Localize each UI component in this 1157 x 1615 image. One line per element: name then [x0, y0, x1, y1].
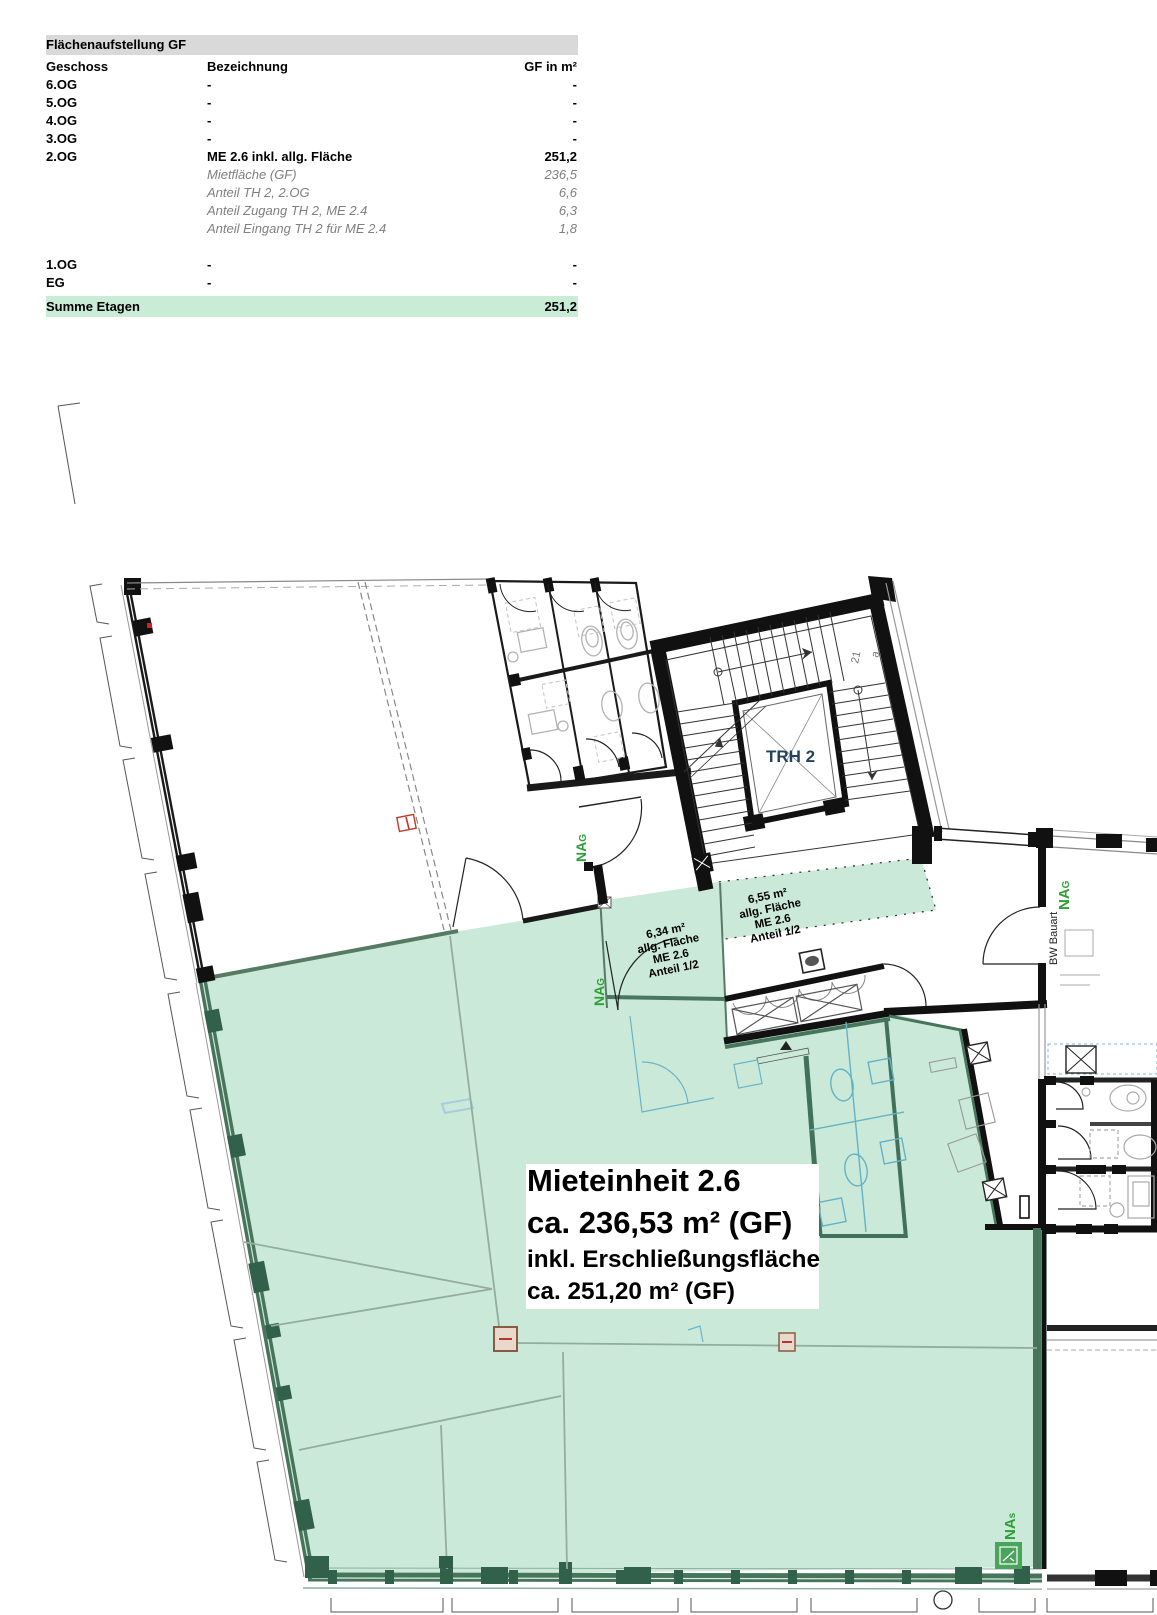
svg-text:NAG: NAG [573, 834, 589, 862]
svg-text:21: 21 [849, 650, 863, 664]
svg-text:ca. 251,20 m² (GF): ca. 251,20 m² (GF) [527, 1278, 735, 1305]
svg-text:TRH 2: TRH 2 [766, 747, 815, 766]
svg-text:ca. 236,53 m² (GF): ca. 236,53 m² (GF) [527, 1205, 792, 1240]
svg-text:inkl. Erschließungsfläche: inkl. Erschließungsfläche [527, 1246, 820, 1273]
svg-text:BW Bauart: BW Bauart [1048, 912, 1060, 965]
svg-text:NAG: NAG [1056, 880, 1073, 910]
svg-text:Mieteinheit 2.6: Mieteinheit 2.6 [527, 1163, 741, 1198]
